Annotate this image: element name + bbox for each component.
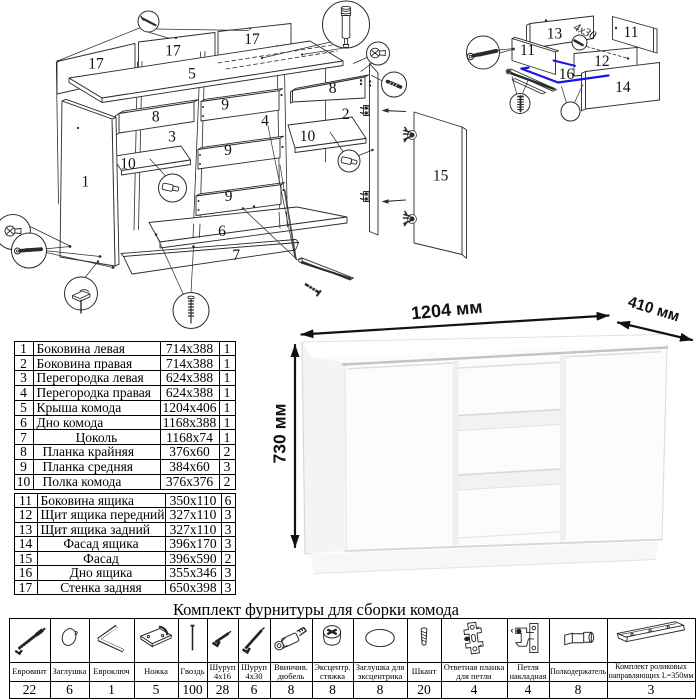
svg-text:8: 8: [329, 80, 337, 97]
svg-text:11: 11: [624, 24, 639, 41]
svg-text:5: 5: [188, 65, 196, 82]
svg-text:9: 9: [225, 188, 233, 205]
svg-text:2: 2: [342, 106, 350, 123]
svg-text:8: 8: [152, 108, 160, 125]
svg-text:16: 16: [559, 66, 575, 83]
svg-text:10: 10: [120, 156, 136, 173]
svg-text:10: 10: [300, 128, 316, 145]
svg-text:15: 15: [433, 168, 449, 185]
svg-text:6: 6: [218, 223, 226, 240]
svg-text:4: 4: [261, 113, 269, 130]
svg-text:17: 17: [244, 31, 260, 48]
svg-text:14: 14: [615, 79, 631, 96]
svg-text:17: 17: [88, 56, 104, 73]
svg-text:12: 12: [594, 53, 610, 70]
svg-text:13: 13: [547, 25, 563, 42]
svg-text:9: 9: [224, 142, 232, 159]
svg-text:11: 11: [520, 42, 535, 59]
svg-text:1: 1: [82, 174, 90, 191]
svg-text:17: 17: [165, 43, 181, 60]
svg-text:3: 3: [168, 129, 176, 146]
svg-text:9: 9: [221, 96, 229, 113]
svg-text:7: 7: [232, 247, 240, 264]
